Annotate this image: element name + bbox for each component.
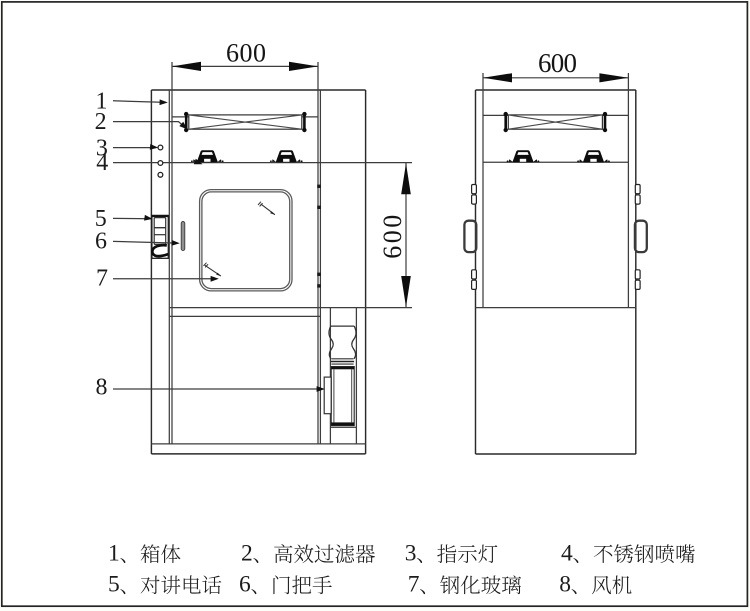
svg-text:3: 3: [405, 540, 417, 566]
svg-text:1: 1: [108, 540, 120, 566]
svg-text:7: 7: [408, 571, 420, 597]
svg-text:5: 5: [108, 571, 120, 597]
svg-text:2: 2: [95, 109, 107, 135]
svg-text:6: 6: [239, 571, 251, 597]
svg-text:4: 4: [561, 540, 573, 566]
svg-text:600: 600: [226, 38, 266, 67]
svg-text:8: 8: [559, 571, 571, 597]
svg-text:8: 8: [96, 374, 108, 400]
svg-text:600: 600: [538, 48, 577, 78]
svg-text:4: 4: [96, 150, 108, 176]
svg-text:600: 600: [378, 215, 407, 259]
svg-text:7: 7: [96, 266, 108, 292]
svg-text:6: 6: [95, 229, 107, 255]
svg-text:2: 2: [241, 540, 253, 566]
